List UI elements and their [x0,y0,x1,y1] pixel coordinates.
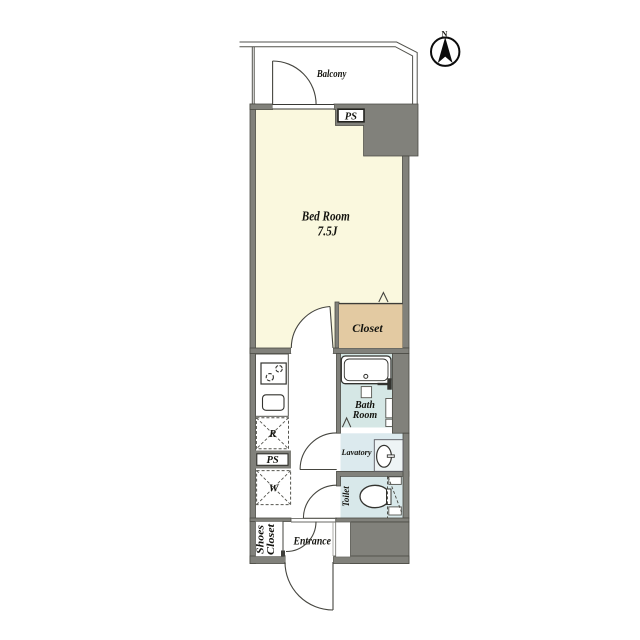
svg-text:Closet: Closet [352,321,383,335]
svg-text:Room: Room [352,410,378,421]
svg-text:PS: PS [266,455,278,466]
svg-text:Toilet: Toilet [342,486,352,507]
svg-text:Balcony: Balcony [316,68,346,80]
svg-text:Lavatory: Lavatory [340,448,371,457]
svg-text:7.5J: 7.5J [318,224,339,239]
svg-text:Bed Room: Bed Room [301,208,350,223]
svg-text:N: N [441,30,447,39]
svg-text:Closet: Closet [266,523,277,555]
svg-text:W: W [269,483,280,495]
svg-text:PS: PS [345,112,357,123]
svg-text:R: R [268,429,276,440]
